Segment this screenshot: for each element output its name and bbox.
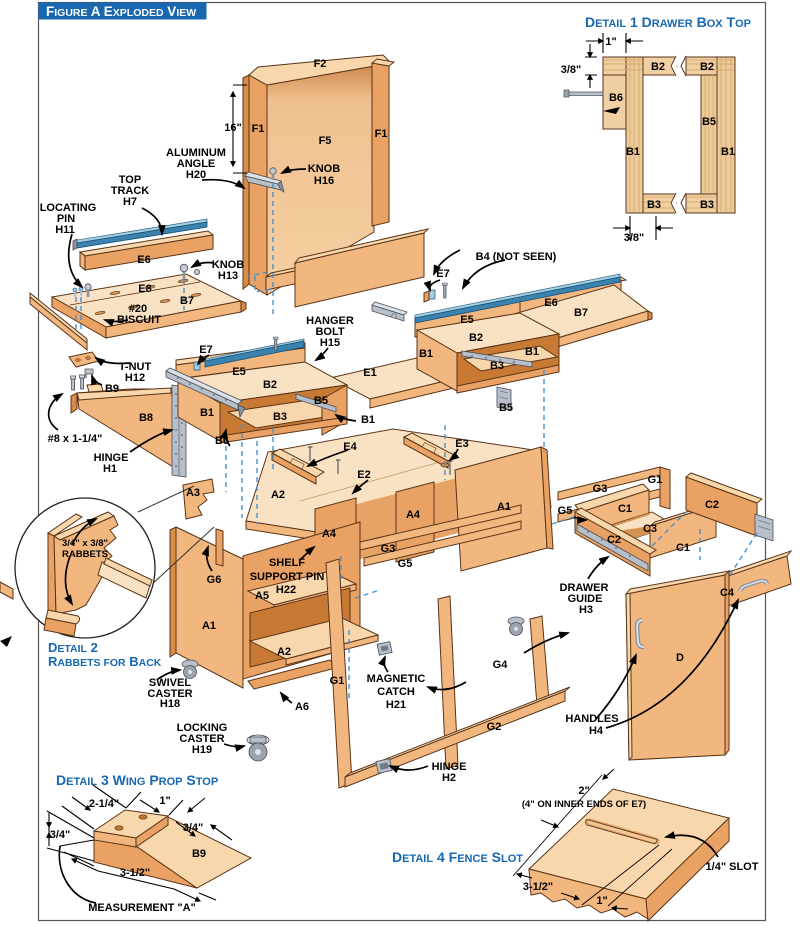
- svg-text:B6: B6: [215, 435, 229, 447]
- svg-text:C2: C2: [607, 534, 621, 546]
- svg-text:3/4": 3/4": [183, 822, 204, 834]
- svg-text:E1: E1: [363, 367, 376, 379]
- svg-text:F2: F2: [314, 58, 327, 70]
- svg-text:3-1/2": 3-1/2": [120, 867, 150, 879]
- svg-text:E7: E7: [199, 344, 212, 356]
- svg-text:KNOB: KNOB: [308, 163, 340, 175]
- svg-text:H15: H15: [320, 337, 340, 349]
- svg-text:H13: H13: [218, 270, 238, 282]
- svg-text:B3: B3: [700, 199, 714, 211]
- svg-text:C4: C4: [720, 587, 735, 599]
- svg-text:B3: B3: [273, 411, 287, 423]
- svg-text:MAGNETIC: MAGNETIC: [367, 673, 426, 685]
- svg-text:A2: A2: [277, 646, 291, 658]
- svg-text:B1: B1: [200, 407, 214, 419]
- svg-text:DETAIL 2: DETAIL 2: [48, 640, 98, 655]
- svg-text:2": 2": [578, 785, 589, 797]
- svg-text:A6: A6: [295, 701, 309, 713]
- svg-text:G3: G3: [381, 543, 396, 555]
- svg-text:G6: G6: [207, 574, 222, 586]
- svg-text:B9: B9: [192, 848, 206, 860]
- svg-text:G5: G5: [398, 558, 413, 570]
- svg-text:B7: B7: [180, 295, 194, 307]
- svg-text:F1: F1: [252, 123, 265, 135]
- svg-text:B1: B1: [626, 146, 640, 158]
- svg-text:3/4" x 3/8": 3/4" x 3/8": [62, 538, 108, 549]
- svg-text:H18: H18: [160, 698, 180, 710]
- svg-text:B8: B8: [139, 412, 153, 424]
- svg-text:B2: B2: [700, 61, 714, 73]
- svg-text:MEASUREMENT "A": MEASUREMENT "A": [88, 902, 196, 914]
- svg-text:B5: B5: [314, 395, 328, 407]
- svg-text:3/4": 3/4": [50, 829, 71, 841]
- svg-text:E5: E5: [232, 366, 245, 378]
- svg-text:B1: B1: [525, 346, 539, 358]
- svg-text:B3: B3: [490, 360, 504, 372]
- svg-text:E2: E2: [357, 469, 370, 481]
- svg-text:3/8": 3/8": [624, 232, 645, 244]
- svg-text:#8 x 1-1/4": #8 x 1-1/4": [48, 433, 103, 445]
- svg-text:B3: B3: [647, 199, 661, 211]
- svg-text:C1: C1: [618, 503, 632, 515]
- svg-text:E8: E8: [138, 283, 151, 295]
- svg-text:H2: H2: [442, 772, 456, 784]
- svg-text:RABBETS FOR BACK: RABBETS FOR BACK: [48, 654, 162, 669]
- svg-text:H1: H1: [103, 463, 117, 475]
- svg-text:B4 (NOT SEEN): B4 (NOT SEEN): [476, 251, 557, 263]
- svg-text:H7: H7: [123, 196, 137, 208]
- svg-text:1/4" SLOT: 1/4" SLOT: [706, 861, 759, 873]
- svg-text:3/8": 3/8": [561, 64, 582, 76]
- svg-text:1": 1": [605, 36, 616, 48]
- svg-text:H19: H19: [192, 744, 212, 756]
- svg-text:1": 1": [596, 895, 607, 907]
- svg-text:(4" ON INNER ENDS OF E7): (4" ON INNER ENDS OF E7): [522, 799, 646, 810]
- svg-text:A4: A4: [322, 528, 337, 540]
- svg-text:BISCUIT: BISCUIT: [117, 314, 161, 326]
- svg-text:SHELF: SHELF: [269, 557, 305, 569]
- svg-text:B9: B9: [105, 383, 119, 395]
- svg-text:G2: G2: [487, 721, 502, 733]
- svg-text:H12: H12: [125, 372, 145, 384]
- svg-text:1": 1": [159, 795, 170, 807]
- svg-text:2-1/4": 2-1/4": [89, 798, 119, 810]
- svg-text:E6: E6: [544, 297, 557, 309]
- svg-text:A5: A5: [255, 590, 269, 602]
- svg-text:B6: B6: [609, 92, 623, 104]
- svg-text:H3: H3: [579, 604, 593, 616]
- svg-text:E4: E4: [343, 441, 357, 453]
- svg-text:H22: H22: [276, 584, 296, 596]
- svg-text:HANDLES: HANDLES: [565, 713, 618, 725]
- svg-text:B2: B2: [651, 61, 665, 73]
- svg-text:FIGURE A EXPLODED VIEW: FIGURE A EXPLODED VIEW: [46, 4, 196, 19]
- svg-text:B1: B1: [419, 348, 433, 360]
- svg-text:B1: B1: [361, 414, 375, 426]
- svg-text:G4: G4: [493, 659, 509, 671]
- svg-text:3-1/2": 3-1/2": [523, 881, 553, 893]
- svg-text:SUPPORT PIN: SUPPORT PIN: [250, 571, 325, 583]
- svg-text:B2: B2: [263, 379, 277, 391]
- svg-text:F5: F5: [319, 135, 332, 147]
- svg-text:G1: G1: [330, 675, 345, 687]
- svg-text:RABBETS: RABBETS: [62, 549, 108, 560]
- svg-text:F1: F1: [375, 128, 388, 140]
- svg-text:B5: B5: [499, 402, 513, 414]
- svg-text:E5: E5: [460, 314, 473, 326]
- svg-text:H4: H4: [589, 725, 604, 737]
- svg-text:A2: A2: [271, 489, 285, 501]
- svg-text:H11: H11: [55, 224, 75, 236]
- svg-text:B5: B5: [702, 116, 716, 128]
- svg-text:G1: G1: [648, 474, 663, 486]
- svg-text:E3: E3: [455, 438, 468, 450]
- svg-text:C1: C1: [676, 542, 690, 554]
- svg-text:H20: H20: [186, 169, 206, 181]
- svg-text:CATCH: CATCH: [377, 686, 415, 698]
- svg-text:E6: E6: [137, 254, 150, 266]
- svg-text:A4: A4: [406, 509, 421, 521]
- svg-text:C3: C3: [643, 523, 657, 535]
- svg-text:H16: H16: [314, 175, 334, 187]
- svg-text:G5: G5: [558, 505, 573, 517]
- svg-text:A3: A3: [186, 487, 200, 499]
- svg-text:C2: C2: [705, 499, 719, 511]
- svg-text:A1: A1: [202, 620, 216, 632]
- svg-text:B2: B2: [469, 332, 483, 344]
- svg-text:H21: H21: [386, 699, 406, 711]
- svg-text:B1: B1: [721, 146, 735, 158]
- svg-text:D: D: [676, 652, 684, 664]
- svg-text:B7: B7: [574, 307, 588, 319]
- svg-text:E7: E7: [436, 268, 449, 280]
- svg-text:A1: A1: [497, 501, 511, 513]
- svg-text:G3: G3: [593, 483, 608, 495]
